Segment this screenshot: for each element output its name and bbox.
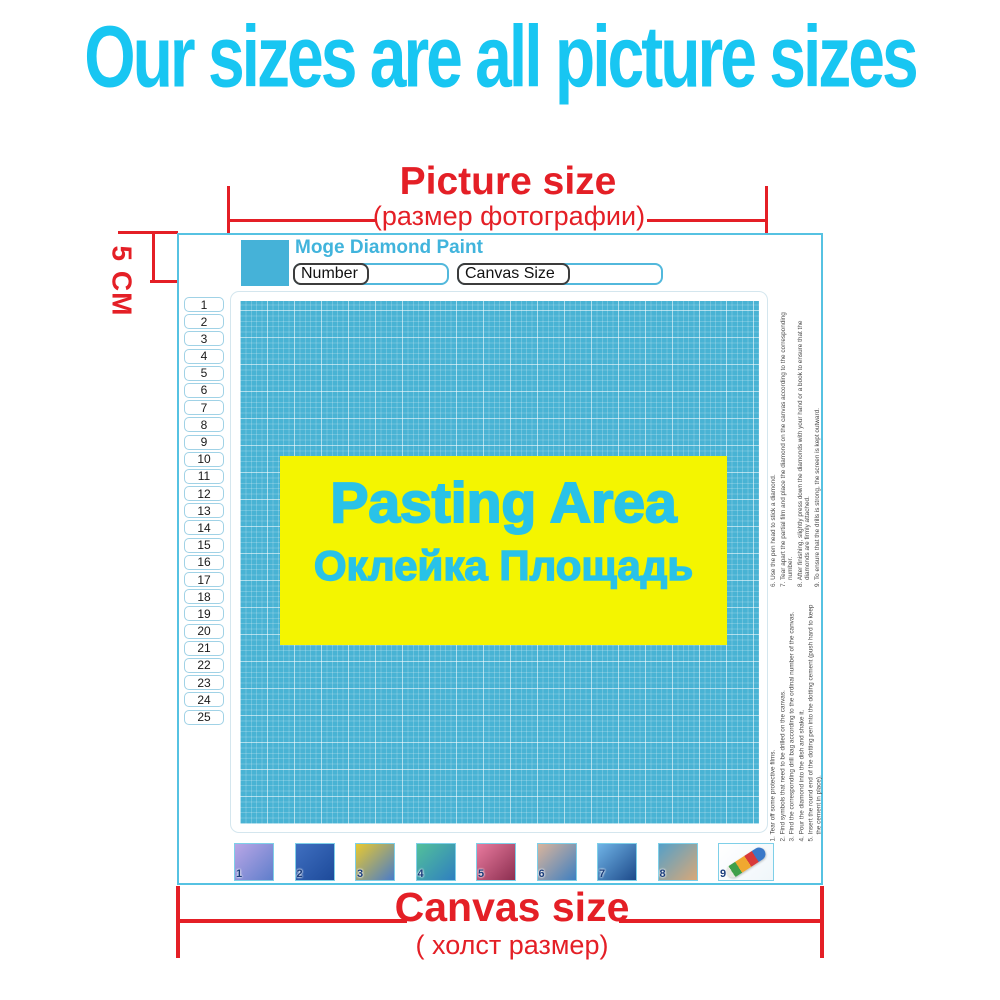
step-thumbnail-photo: 9	[718, 843, 774, 881]
margin-5cm-label: 5 CM	[104, 219, 138, 344]
rolled-canvas-tube	[724, 845, 768, 880]
step-thumbnail-photo: 5	[476, 843, 516, 881]
ordinal-number-list: 1234567891011121314151617181920212223242…	[184, 297, 224, 727]
ordinal-number-cell: 16	[184, 555, 224, 570]
ordinal-number-cell: 19	[184, 606, 224, 621]
diamond-grid-canvas: Pasting Area Оклейка Площадь	[240, 301, 759, 824]
instruction-line: 3. Find the corresponding drill bag acco…	[789, 597, 797, 842]
instruction-line: 6. Use the pen head to stick a diamond.	[770, 297, 778, 587]
canvas-size-tick-right	[820, 886, 824, 958]
instruction-line: 7. Tear apart the partial film and place…	[780, 297, 795, 587]
page-title: Our sizes are all picture sizes	[0, 6, 1000, 106]
step-thumbnail-photo: 2	[295, 843, 335, 881]
step-number-badge: 1	[236, 868, 242, 880]
step-thumbnail-photo: 6	[537, 843, 577, 881]
picture-size-label: Picture size	[0, 160, 1000, 204]
ordinal-number-cell: 24	[184, 692, 224, 707]
pasting-area-label-en: Pasting Area	[280, 470, 727, 536]
brand-color-swatch	[241, 240, 289, 286]
step-number-badge: 3	[357, 868, 363, 880]
ordinal-number-cell: 3	[184, 331, 224, 346]
grid-panel: Pasting Area Оклейка Площадь	[230, 291, 768, 833]
ordinal-number-cell: 25	[184, 710, 224, 725]
ordinal-number-cell: 5	[184, 366, 224, 381]
ordinal-number-cell: 1	[184, 297, 224, 312]
step-thumbnail-photo: 7	[597, 843, 637, 881]
step-number-badge: 2	[297, 868, 303, 880]
step-thumbnail-photo: 8	[658, 843, 698, 881]
ordinal-number-cell: 8	[184, 417, 224, 432]
step-thumbnail-photo: 4	[416, 843, 456, 881]
pasting-area-banner: Pasting Area Оклейка Площадь	[280, 456, 727, 645]
canvas-size-sublabel-ru: ( холст размер)	[0, 930, 1000, 961]
canvas-size-field-label: Canvas Size	[457, 263, 570, 285]
instruction-line: 4. Pour the diamond into the dish and sh…	[798, 597, 806, 842]
step-number-badge: 6	[539, 868, 545, 880]
instruction-line: 9. To ensure that the drills is strong, …	[814, 297, 822, 587]
ordinal-number-cell: 17	[184, 572, 224, 587]
canvas-size-label: Canvas size	[0, 884, 1000, 931]
picture-size-measure-line-left	[229, 219, 375, 222]
ordinal-number-cell: 23	[184, 675, 224, 690]
ordinal-number-cell: 14	[184, 520, 224, 535]
step-number-badge: 4	[418, 868, 424, 880]
canvas-size-measure-line-left	[178, 919, 407, 923]
ordinal-number-cell: 10	[184, 452, 224, 467]
step-thumbnail-photo: 1	[234, 843, 274, 881]
picture-size-sublabel-ru: (размер фотографии)	[0, 201, 1000, 232]
step-thumbnail-photo: 3	[355, 843, 395, 881]
ordinal-number-cell: 21	[184, 641, 224, 656]
step-number-badge: 7	[599, 868, 605, 880]
ordinal-number-cell: 2	[184, 314, 224, 329]
step-number-badge: 8	[660, 868, 666, 880]
instruction-line: 5. Insert the round end of the dotting p…	[808, 597, 823, 842]
picture-size-measure-line-right	[647, 219, 768, 222]
step-thumbnail-strip: 1 2 3 4 5 6 7 8 9	[234, 843, 774, 881]
margin-measure-line	[152, 231, 155, 283]
canvas-mockup: Moge Diamond Paint Number Canvas Size 12…	[177, 233, 823, 885]
ordinal-number-cell: 12	[184, 486, 224, 501]
ordinal-number-cell: 15	[184, 538, 224, 553]
canvas-size-tick-left	[176, 886, 180, 958]
instruction-line: 2. Find symbols that need to be drilled …	[779, 597, 787, 842]
margin-tick-top	[118, 231, 178, 234]
canvas-size-measure-line-right	[619, 919, 822, 923]
instruction-line: 1. Tear off some protective films.	[770, 597, 778, 842]
ordinal-number-cell: 18	[184, 589, 224, 604]
instructions-steps-6-9: 6. Use the pen head to stick a diamond.7…	[770, 297, 826, 587]
ordinal-number-cell: 11	[184, 469, 224, 484]
pasting-area-label-ru: Оклейка Площадь	[280, 542, 727, 590]
brand-name: Moge Diamond Paint	[295, 237, 483, 259]
ordinal-number-cell: 7	[184, 400, 224, 415]
step-number-badge: 5	[478, 868, 484, 880]
ordinal-number-cell: 20	[184, 624, 224, 639]
ordinal-number-cell: 4	[184, 349, 224, 364]
ordinal-number-cell: 6	[184, 383, 224, 398]
instructions-steps-1-5: 1. Tear off some protective films.2. Fin…	[770, 597, 826, 842]
ordinal-number-cell: 9	[184, 435, 224, 450]
product-size-infographic: Our sizes are all picture sizes Picture …	[0, 0, 1000, 1000]
number-field-label: Number	[293, 263, 369, 285]
ordinal-number-cell: 13	[184, 503, 224, 518]
ordinal-number-cell: 22	[184, 658, 224, 673]
instruction-line: 8. After finishing, slightly press down …	[797, 297, 812, 587]
margin-tick-bottom	[150, 280, 178, 283]
